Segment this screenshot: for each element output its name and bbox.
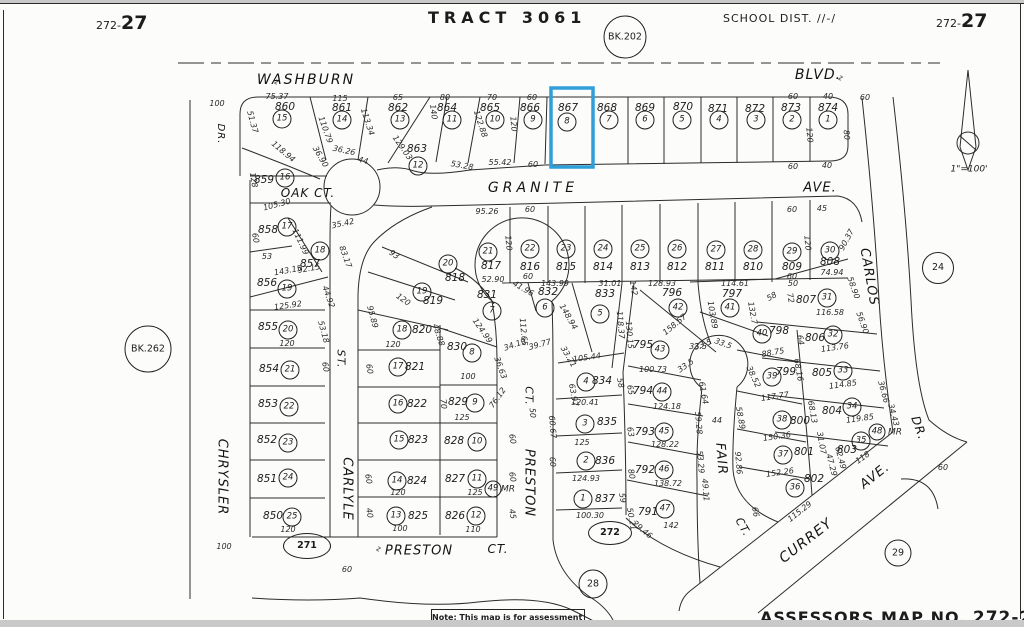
dimension-label: 115.29 (787, 500, 814, 524)
parcel-number-circle: 37 (774, 446, 793, 465)
dimension-label: 74.94 (821, 269, 844, 277)
dimension-label: 100 (392, 525, 407, 533)
map-title: TRACT 3061 (428, 8, 586, 27)
lot-number-label: 796 (662, 288, 682, 299)
dimension-label: 53.29 (695, 450, 705, 474)
dimension-label: 36.63 (492, 356, 507, 380)
dimension-label: 60 (788, 163, 798, 171)
parcel-number-circle: 6 (536, 299, 555, 318)
dimension-label: 50 (788, 280, 798, 288)
parcel-number-circle: 18 (393, 321, 412, 340)
dimension-label: MR (888, 429, 902, 438)
dimension-label: 36.26 (332, 145, 356, 158)
dimension-label: 92.86 (733, 451, 743, 475)
lot-number-label: 820 (412, 325, 432, 336)
dimension-label: 117.77 (761, 391, 790, 403)
dimension-label: 61.64 (697, 381, 709, 405)
parcel-number-circle: 23 (557, 240, 576, 259)
dimension-label: ∿ (272, 79, 280, 86)
dimension-label: 44.92 (320, 285, 335, 309)
lot-number-label: 797 (722, 289, 742, 300)
parcel-number-circle: 18 (311, 242, 330, 261)
dimension-label: 44 (712, 417, 722, 425)
parcel-number-circle: 2 (577, 452, 596, 471)
dimension-label: 60 (527, 94, 537, 102)
school-district-label: SCHOOL DIST. //-/ (723, 12, 836, 25)
parcel-number-circle: 2 (783, 111, 802, 130)
dimension-label: 95.89 (365, 305, 379, 329)
dimension-label: 93 (388, 249, 401, 261)
lot-number-label: 798 (769, 326, 789, 337)
dimension-label: 45 (507, 508, 517, 519)
parcel-number-circle: 30 (821, 242, 840, 261)
lot-number-label: 855 (258, 322, 278, 333)
lot-number-label: 817 (481, 261, 501, 272)
dimension-label: 128 (248, 172, 259, 188)
dimension-label: 132.7 (746, 301, 758, 325)
dimension-label: 55.42 (489, 159, 512, 167)
dimension-label: 65 (393, 94, 403, 102)
street-name-label: CARLOS (858, 247, 881, 307)
parcel-number-circle: 4 (577, 373, 596, 392)
dimension-label: 40 (364, 507, 374, 518)
parcel-number-circle: 45 (655, 423, 674, 442)
parcel-number-circle: 46 (655, 461, 674, 480)
dimension-label: 118.94 (270, 140, 297, 164)
street-name-label: CT. (487, 543, 508, 555)
dimension-label: 45 (817, 205, 827, 213)
dimension-label: 142 (628, 280, 639, 296)
sheet-number-right: 272-27 (936, 10, 987, 32)
dimension-label: 68.16 (792, 358, 804, 382)
parcel-number-circle: 21 (281, 361, 300, 380)
dimension-label: 70 (439, 399, 448, 410)
parcel-number-circle: 4 (710, 111, 729, 130)
parcel-number-circle: 39 (763, 368, 782, 387)
map-reference-badge: BK.202 (604, 16, 647, 59)
dimension-label: 60 (525, 206, 535, 214)
parcel-number-circle: 3 (747, 111, 766, 130)
dimension-label: 125 (574, 439, 589, 447)
dimension-label: 60 (342, 566, 352, 574)
parcel-number-circle: 41 (721, 299, 740, 318)
lot-number-label: 804 (822, 406, 842, 417)
dimension-label: 110 (465, 526, 480, 534)
lot-number-label: 831 (477, 290, 497, 301)
street-name-label: CHRYSLER (216, 439, 229, 516)
dimension-label: 120 (804, 127, 813, 143)
street-name-label: PRESTON (523, 449, 536, 517)
dimension-label: 128.22 (651, 441, 679, 449)
parcel-number-circle: 11 (468, 470, 487, 489)
lot-number-label: 836 (595, 456, 615, 467)
dimension-label: 53.18 (316, 320, 330, 344)
dimension-label: 100 (216, 543, 231, 551)
dimension-label: 33.5 (713, 337, 732, 351)
dimension-label: 50 (528, 408, 537, 419)
street-name-label: ST. (336, 350, 347, 369)
dimension-label: 138.72 (654, 480, 682, 488)
lot-number-label: 832 (538, 287, 558, 298)
parcel-number-circle: 24 (594, 240, 613, 259)
lot-number-label: 807 (796, 295, 816, 306)
street-name-label: DR. (909, 414, 929, 441)
dimension-label: 120 (385, 341, 400, 349)
parcel-number-circle: 16 (276, 169, 295, 188)
dimension-label: 150.36 (763, 431, 792, 443)
map-reference-badge: 24 (922, 252, 954, 284)
dimension-label: 35.42 (331, 218, 355, 231)
dimension-label: 72 (785, 292, 795, 303)
dimension-label: 60 (507, 471, 517, 482)
lot-number-label: 822 (407, 399, 427, 410)
lot-number-label: 826 (445, 511, 465, 522)
lot-number-label: 851 (257, 474, 277, 485)
dimension-label: ∿ (836, 75, 844, 82)
lot-number-label: 824 (407, 476, 427, 487)
parcel-number-circle: 9 (466, 394, 485, 413)
parcel-number-circle: 49 (485, 481, 502, 498)
map-reference-badge: BK.262 (125, 326, 172, 373)
parcel-number-circle: 14 (388, 472, 407, 491)
lot-number-label: 810 (743, 262, 763, 273)
dimension-label: 125 (467, 489, 482, 497)
parcel-number-circle: 12 (467, 507, 486, 526)
dimension-label: 60 (860, 94, 870, 102)
dimension-label: 60 (363, 473, 373, 484)
lot-number-label: 806 (805, 333, 825, 344)
dimension-label: 58 (766, 291, 779, 303)
dimension-label: 120 (394, 292, 411, 307)
parcel-number-circle: 47 (656, 500, 675, 519)
street-name-label: CT. (524, 386, 535, 406)
dimension-label: ∿ (374, 546, 382, 553)
parcel-number-circle: 19 (278, 280, 297, 299)
dimension-label: 40 (822, 162, 832, 170)
dimension-label: 36.90 (311, 145, 329, 169)
parcel-number-circle: 10 (486, 111, 505, 130)
dimension-label: 143.99 (541, 280, 569, 288)
lot-number-label: 816 (520, 262, 540, 273)
lot-number-label: 801 (794, 447, 814, 458)
lot-number-label: 823 (408, 435, 428, 446)
dimension-label: 114.61 (721, 280, 749, 288)
parcel-number-circle: 5 (591, 305, 610, 324)
lot-number-label: 833 (595, 289, 615, 300)
dimension-label: 40 (823, 93, 833, 101)
parcel-number-circle: 28 (744, 241, 763, 260)
parcel-number-circle: 32 (824, 326, 843, 345)
lot-number-label: 794 (633, 386, 653, 397)
parcel-number-circle: 22 (280, 398, 299, 417)
dimension-label: 110.79 (316, 115, 333, 144)
dimension-label: 58.90 (845, 276, 860, 300)
parcel-number-circle: 38 (773, 411, 792, 430)
dimension-label: 105.30 (262, 198, 291, 213)
dimension-label: 88.75 (761, 347, 785, 359)
dimension-label: 60 (787, 206, 797, 214)
street-name-label: GRANITE (488, 181, 578, 195)
dimension-label: 51.37 (245, 110, 259, 134)
lot-number-label: 812 (667, 262, 687, 273)
parcel-number-circle: 10 (468, 433, 487, 452)
parcel-number-circle: 29 (783, 243, 802, 262)
parcel-number-circle: 24 (279, 469, 298, 488)
dimension-label: 36.66 (876, 380, 890, 404)
dimension-label: 100.73 (639, 366, 667, 374)
lot-number-label: 825 (408, 511, 428, 522)
parcel-number-circle: 8 (558, 113, 577, 132)
lot-number-label: 793 (635, 427, 655, 438)
dimension-label: 60 (320, 361, 330, 372)
dimension-label: 60 (528, 161, 538, 169)
lot-number-label: 818 (445, 273, 465, 284)
lot-number-label: 854 (259, 364, 279, 375)
dimension-label: 120.41 (571, 399, 599, 407)
dimension-label: 113.34 (359, 107, 375, 136)
lot-number-label: 800 (790, 416, 810, 427)
dimension-label: 83.17 (337, 245, 352, 269)
parcel-number-circle: 48 (869, 424, 886, 441)
dimension-label: 58.89 (734, 406, 746, 430)
lot-number-label: 792 (635, 465, 655, 476)
dimension-label: 53 (262, 253, 272, 261)
parcel-number-circle: 26 (668, 240, 687, 259)
parcel-number-circle: 35 (852, 432, 871, 451)
dimension-label: 115 (332, 95, 347, 103)
dimension-label: 39.77 (528, 338, 552, 352)
lot-number-label: 828 (444, 436, 464, 447)
lot-number-label: 837 (595, 494, 615, 505)
lot-number-label: 858 (258, 225, 278, 236)
dimension-label: 80 (440, 94, 450, 102)
dimension-label: 60 (548, 457, 557, 468)
parcel-number-circle: 1 (574, 490, 593, 509)
dimension-label: 116.58 (816, 309, 844, 317)
dimension-label: 100 (209, 100, 224, 108)
parcel-number-circle: 23 (279, 434, 298, 453)
parcel-number-circle: 1 (819, 111, 838, 130)
dimension-label: 124.18 (653, 403, 681, 411)
dimension-label: 64 (795, 334, 805, 345)
dimension-label: 59.28 (693, 411, 703, 435)
parcel-number-circle: 22 (521, 240, 540, 259)
parcel-number-circle: 21 (479, 243, 498, 262)
dimension-label: 31.01 (599, 280, 622, 288)
parcel-number-circle: 6 (636, 111, 655, 130)
parcel-number-circle: 5 (673, 111, 692, 130)
dimension-label: 34.43 (886, 403, 900, 427)
dimension-label: 120 (508, 116, 517, 132)
dimension-label: 100 (460, 373, 475, 381)
assessor-map-sheet: 272-27 TRACT 3061 SCHOOL DIST. //-/ 272-… (0, 0, 1024, 627)
dimension-label: 125 (454, 414, 469, 422)
parcel-number-circle: 44 (653, 383, 672, 402)
dimension-label: 92.15 (297, 263, 321, 275)
parcel-number-circle: 40 (753, 325, 772, 344)
lot-number-label: 821 (405, 362, 425, 373)
dimension-label: 105.44 (573, 352, 602, 364)
parcel-number-circle: 42 (669, 299, 688, 318)
dimension-label: MR (501, 486, 515, 495)
map-reference-badge: 29 (885, 540, 912, 567)
dimension-label: 63 (625, 426, 635, 437)
parcel-number-circle: 15 (390, 431, 409, 450)
lot-number-label: 805 (812, 368, 832, 379)
lot-number-label: 811 (705, 262, 725, 273)
map-reference-badge: 272 (588, 521, 632, 545)
lot-number-label: 827 (445, 474, 465, 485)
dimension-label: 76.12 (488, 386, 508, 409)
dimension-label: 124.99 (471, 317, 494, 345)
parcel-number-circle: 7 (483, 302, 502, 321)
dimension-label: 120 (802, 235, 811, 251)
dimension-label: 60 (788, 93, 798, 101)
dimension-label: 128.93 (648, 280, 676, 288)
street-name-label: FAIR (713, 442, 729, 475)
parcel-number-circle: 33 (834, 362, 853, 381)
parcel-number-circle: 14 (333, 111, 352, 130)
lot-number-label: 856 (257, 278, 277, 289)
map-scale: 1"=100' (950, 166, 987, 175)
street-name-label: AVE. (858, 461, 892, 492)
lot-number-label: 813 (630, 262, 650, 273)
dimension-label: 34.19 (503, 337, 527, 352)
parcel-number-circle: 13 (391, 111, 410, 130)
parcel-number-circle: 25 (631, 240, 650, 259)
parcel-number-circle: 11 (443, 111, 462, 130)
dimension-label: 60 (364, 363, 374, 374)
street-name-label: CARLYLE (341, 457, 354, 520)
scan-edge-top (0, 0, 1024, 3)
dimension-label: 140 (428, 104, 438, 120)
lot-number-label: 852 (257, 435, 277, 446)
parcel-number-circle: 20 (279, 321, 298, 340)
dimension-label: 58 (615, 377, 625, 388)
dimension-label: 48.88 (431, 323, 446, 347)
parcel-number-circle: 36 (786, 479, 805, 498)
parcel-number-circle: 3 (576, 415, 595, 434)
street-name-label: AVE. (803, 182, 837, 195)
lot-number-label: 802 (804, 474, 824, 485)
lot-number-label: 850 (263, 511, 283, 522)
parcel-number-circle: 43 (651, 341, 670, 360)
dimension-label: 52.90 (482, 276, 505, 284)
dimension-label: 124.93 (572, 475, 600, 483)
dimension-label: 120 (279, 340, 294, 348)
lot-number-label: 814 (593, 262, 613, 273)
dimension-label: 53.28 (450, 160, 474, 172)
sheet-number-left: 272-27 (96, 12, 147, 34)
dimension-label: 66 (750, 506, 760, 517)
street-name-label: BLVD. (795, 68, 841, 82)
parcel-number-circle: 19 (413, 283, 432, 302)
map-reference-badge: 271 (283, 533, 331, 559)
dimension-label: 100.30 (576, 512, 604, 520)
dimension-label: 56.90 (854, 311, 869, 335)
dimension-label: 60 (523, 273, 533, 281)
parcel-number-circle: 17 (389, 358, 408, 377)
dimension-label: 103.89 (706, 301, 719, 330)
dimension-label: 75.37 (266, 93, 289, 101)
dimension-label: 130.15 (624, 321, 634, 350)
parcel-number-circle: 9 (524, 111, 543, 130)
dimension-label: 142 (663, 522, 678, 530)
dimension-label: 120 (503, 235, 512, 251)
dimension-label: 60 (250, 232, 260, 243)
dimension-label: 60 (507, 433, 517, 444)
dimension-label: 49.11 (700, 478, 710, 502)
map-reference-badge: 28 (579, 570, 608, 599)
dimension-label: 60 (938, 464, 948, 472)
dimension-label: 60.67 (547, 415, 557, 439)
dimension-label: 59 (617, 492, 627, 503)
street-name-label: CT. (733, 516, 752, 538)
dimension-label: 65 (625, 384, 635, 395)
dimension-label: 33.5 (676, 358, 695, 375)
street-name-label: DR. (215, 124, 225, 145)
scan-edge-bottom (0, 620, 1024, 627)
dimension-label: 125.92 (274, 300, 303, 312)
parcel-number-circle: 7 (600, 111, 619, 130)
dimension-label: 90.37 (838, 228, 856, 252)
dimension-label: 38.52 (745, 365, 762, 389)
parcel-number-circle: 31 (818, 289, 837, 308)
lot-number-label: 815 (556, 262, 576, 273)
dimension-label: 114.85 (829, 379, 858, 391)
dimension-label: 80 (626, 468, 636, 479)
parcel-number-circle: 8 (463, 344, 482, 363)
street-name-label: CURREY (777, 516, 835, 566)
dimension-label: 70 (487, 94, 497, 102)
parcel-number-circle: 20 (439, 255, 458, 274)
parcel-number-circle: 15 (273, 110, 292, 129)
dimension-label: 95.26 (476, 208, 499, 216)
street-name-label: PRESTON (385, 545, 453, 558)
dimension-label: 152.26 (766, 467, 795, 479)
parcel-number-circle: 16 (389, 395, 408, 414)
map-labels-layer: WASHBURNBLVD.GRANITEAVE.OAK CT.DR.CHRYSL… (0, 0, 1024, 627)
parcel-number-circle: 27 (707, 241, 726, 260)
parcel-number-circle: 17 (278, 218, 297, 237)
dimension-label: 31.07 (815, 431, 827, 455)
dimension-label: 41.96 (511, 280, 535, 298)
dimension-label: 148.94 (558, 303, 579, 331)
dimension-label: 44 (357, 156, 369, 166)
lot-number-label: 853 (258, 399, 278, 410)
parcel-number-circle: 34 (843, 398, 862, 417)
parcel-number-circle: 25 (283, 508, 302, 527)
lot-number-label: 835 (597, 417, 617, 428)
dimension-label: 80 (842, 130, 851, 141)
parcel-number-circle: 12 (409, 157, 428, 176)
parcel-number-circle: 13 (387, 507, 406, 526)
dimension-label: 120 (280, 526, 295, 534)
lot-number-label: 809 (782, 262, 802, 273)
